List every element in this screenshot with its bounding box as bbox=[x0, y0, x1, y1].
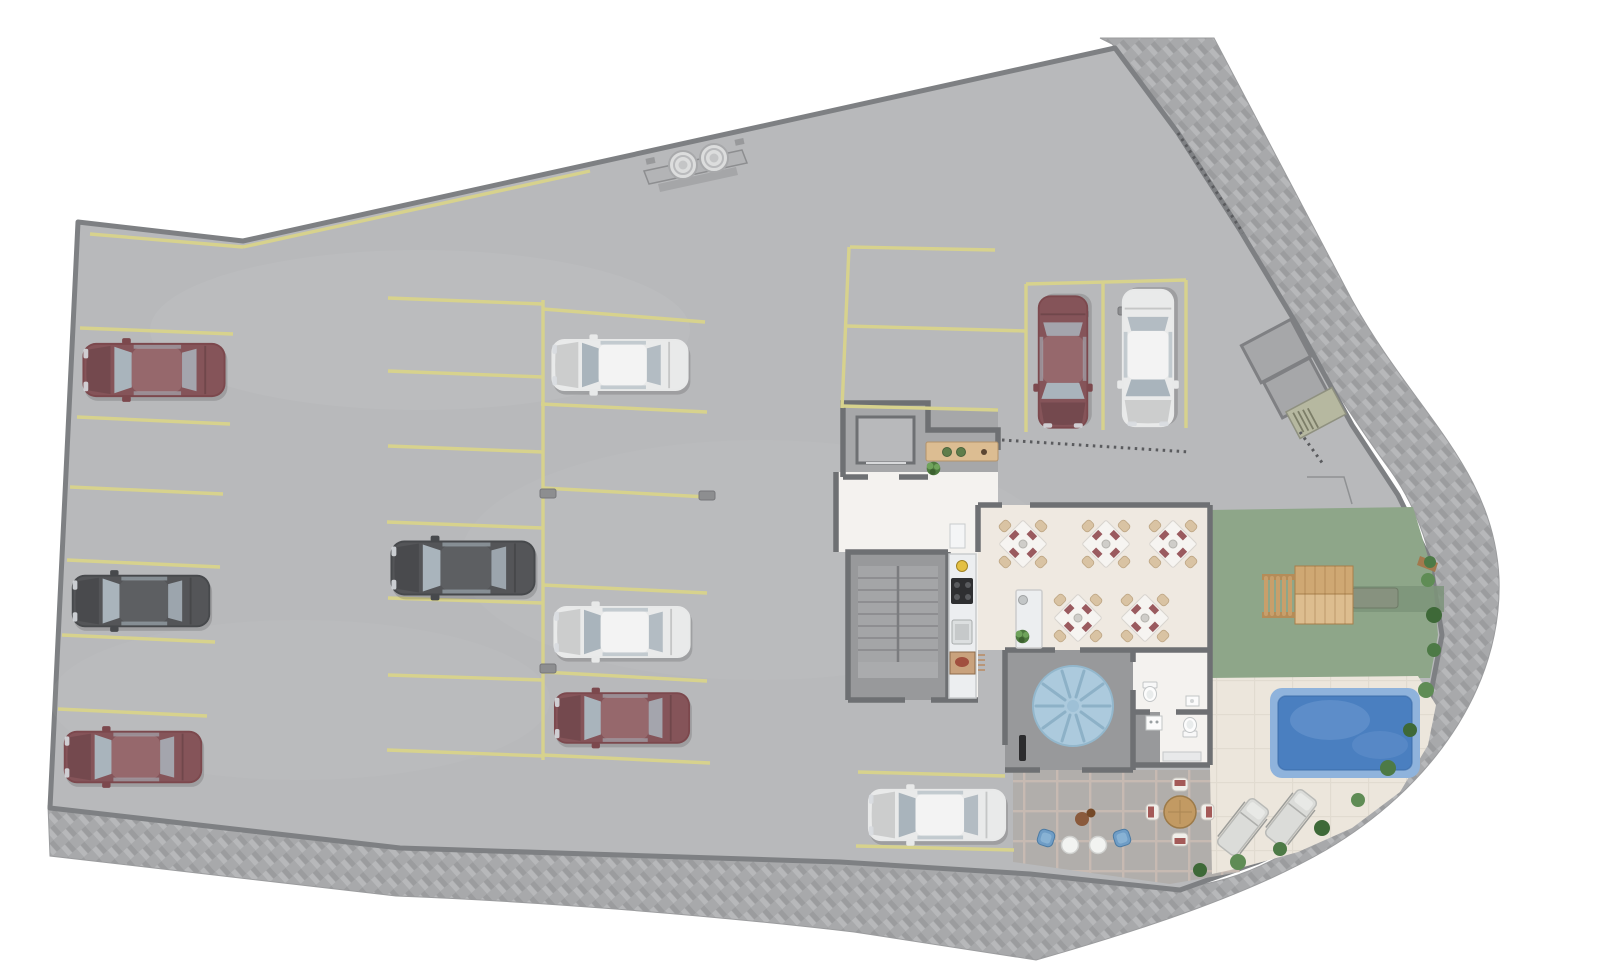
patio-side-table bbox=[1062, 837, 1079, 854]
patio-dog-statue-head bbox=[1087, 809, 1096, 818]
site-plan-svg bbox=[0, 0, 1600, 967]
hedge-bush bbox=[1351, 793, 1365, 807]
hedge-bush bbox=[1424, 556, 1436, 568]
stove-burner bbox=[954, 582, 960, 588]
pool-water-highlight bbox=[1352, 731, 1408, 759]
fridge bbox=[950, 524, 965, 548]
counter-knob bbox=[981, 449, 987, 455]
site-plan-render bbox=[0, 0, 1600, 967]
vestibule-basin-dot bbox=[1150, 721, 1153, 724]
car-white bbox=[868, 784, 1008, 846]
patio-side-table bbox=[1090, 837, 1107, 854]
vestibule-basin-dot bbox=[1156, 721, 1159, 724]
stove-burner bbox=[954, 594, 960, 600]
entry-plant bbox=[927, 462, 941, 476]
vestibule-basin bbox=[1146, 716, 1162, 730]
hedge-bush bbox=[1314, 820, 1330, 836]
car-maroon bbox=[82, 338, 227, 402]
car-dark bbox=[390, 536, 537, 601]
gate-wheel-hub bbox=[679, 161, 688, 170]
counter-stool bbox=[957, 448, 966, 457]
hedge-bush bbox=[1403, 723, 1417, 737]
hedge-bush bbox=[1193, 863, 1207, 877]
staircase-landing bbox=[858, 662, 938, 678]
wheel-stop bbox=[699, 491, 715, 500]
kitchen-sink-basin bbox=[955, 624, 969, 640]
stove-burner bbox=[965, 594, 971, 600]
gate-wheel-hub bbox=[710, 154, 719, 163]
hedge-bush bbox=[1380, 760, 1396, 776]
round-kiddie-pool-center bbox=[1067, 700, 1079, 712]
playground-slide bbox=[1352, 588, 1398, 608]
entry-hall-floor bbox=[836, 472, 998, 552]
car-white bbox=[553, 601, 692, 662]
island-plant bbox=[1016, 630, 1030, 644]
car-maroon bbox=[1033, 294, 1092, 429]
wheel-stop bbox=[540, 664, 556, 673]
stove-burner bbox=[965, 582, 971, 588]
hedge-bush bbox=[1230, 854, 1246, 870]
counter-stool bbox=[943, 448, 952, 457]
stove bbox=[951, 578, 973, 604]
kitchen-round-sink bbox=[957, 561, 968, 572]
bathroom-sink-basin bbox=[1190, 699, 1194, 703]
toilet bbox=[1183, 718, 1197, 738]
car-white bbox=[551, 334, 690, 395]
hedge-bush bbox=[1273, 842, 1287, 856]
hedge-bush bbox=[1426, 607, 1442, 623]
hedge-bush bbox=[1421, 573, 1435, 587]
hedge-bush bbox=[1418, 682, 1434, 698]
car-white bbox=[1117, 287, 1179, 427]
bbq-meat bbox=[955, 657, 969, 667]
car-dark bbox=[72, 570, 212, 632]
island-sink bbox=[1019, 596, 1028, 605]
pool-water-highlight bbox=[1290, 700, 1370, 740]
toilet bbox=[1143, 682, 1157, 702]
courtyard-bench bbox=[1019, 735, 1026, 761]
wheel-stop bbox=[540, 489, 556, 498]
hedge-bush bbox=[1427, 643, 1441, 657]
shower-tray bbox=[1163, 752, 1201, 761]
elevator-cab bbox=[857, 417, 914, 463]
car-maroon bbox=[554, 688, 692, 749]
car-maroon bbox=[64, 726, 204, 788]
